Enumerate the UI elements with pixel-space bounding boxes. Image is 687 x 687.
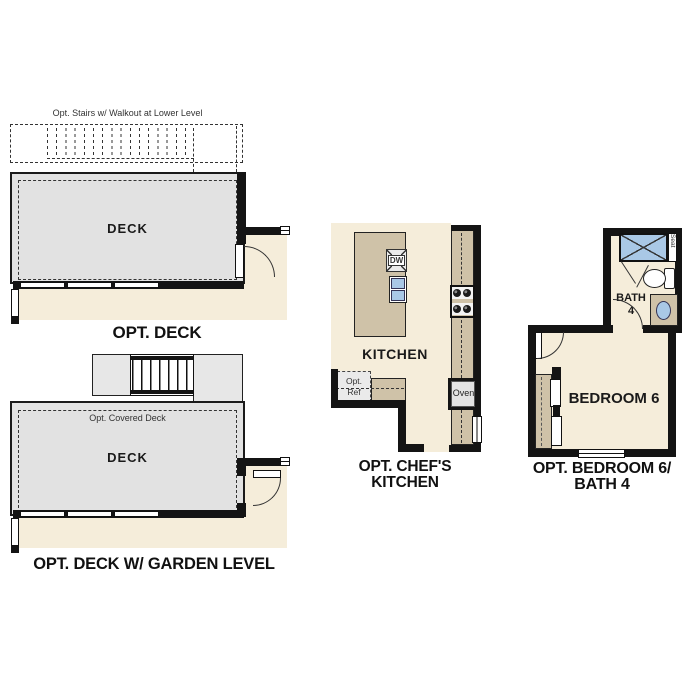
plan-title-line2: BATH 4 [512,476,687,494]
wall [331,400,406,408]
wall [331,369,338,408]
burner [453,289,461,297]
wall [449,445,481,452]
kitchen-island [354,232,406,337]
burner [453,305,461,313]
ground-strip [18,288,287,320]
wall [451,225,481,231]
plan-title-line2: KITCHEN [325,474,485,492]
closet-rod-dashed [541,377,542,446]
bath-label-line1: BATH [606,292,656,304]
wall [243,227,281,235]
opt-ref-label-line1: Opt. [338,376,370,387]
railing-segment [20,511,65,517]
closet-shelf [535,374,552,449]
bath-door-arc [613,299,643,329]
counter-centerline [461,410,462,443]
shower-door-line [621,261,636,283]
sink-basin [391,290,405,301]
railing-segment [67,282,112,288]
bath-floor [603,228,682,330]
wall [603,228,611,325]
kitchen-floor [398,401,451,452]
oven [451,381,475,407]
sink-basin [391,278,405,289]
vanity-sink [656,301,671,320]
stair-dashed-line [236,126,237,172]
wall [528,325,536,457]
door-leaf [235,244,244,278]
cooktop [450,285,475,318]
wall [398,400,406,452]
closet-door-panel [551,416,562,446]
stair-treads [132,360,192,390]
plan-title-line1: OPT. CHEF'S [325,458,485,476]
counter-run [451,225,474,445]
wall [398,444,424,452]
wall [237,458,246,476]
toilet-tank [664,268,675,289]
closet-wall-stub [553,405,560,416]
plan-opt-deck-garden: Opt. Covered Deck DECK OPT. DECK W/ GARD… [0,345,330,585]
wall [603,228,682,236]
stair-rail [131,390,193,394]
window [472,416,482,443]
stair-treads [47,128,194,158]
cooktop-row [452,287,473,299]
door-leaf [253,470,281,478]
bath-label-line2: 4 [606,305,656,317]
counter-dashed-line [331,388,404,389]
railing-stub [11,289,19,317]
plan-title: OPT. DECK [57,323,257,343]
opt-ref-label-line2: Ref [338,387,370,398]
wall [528,449,676,457]
shower [619,233,668,262]
door-leaf [535,332,542,359]
stair-dashed-line [193,128,194,172]
dishwasher [386,249,407,272]
bedroom-room-label: BEDROOM 6 [544,390,684,407]
oven-frame [448,378,478,410]
plan-title-line1: OPT. BEDROOM 6/ [512,460,687,478]
ground-strip [18,518,287,548]
wall [643,325,682,333]
stair-landing [92,354,131,396]
wall [675,228,682,330]
kitchen-room-label: KITCHEN [325,346,465,362]
burner [463,289,471,297]
window [578,449,625,458]
railing-segment [114,282,159,288]
oven-label: Oven [449,388,478,398]
counter-centerline [461,233,462,284]
closet-door-panel [550,379,561,407]
railing-segment [20,282,65,288]
plan-title: OPT. DECK W/ GARDEN LEVEL [29,555,279,574]
vanity [650,294,678,326]
wall [474,225,481,452]
shower-seat: Seat [668,233,677,262]
covered-deck-note: Opt. Covered Deck [10,413,245,423]
opt-ref-box: Opt. Ref [337,371,371,402]
floorplan-sheet: Opt. Stairs w/ Walkout at Lower Level DE… [0,0,687,687]
wall [668,333,676,457]
deck-room-label: DECK [10,450,245,465]
door-swing-arc [537,332,564,359]
wall [243,458,281,466]
window [280,457,290,466]
closet-wall-stub [552,367,561,381]
shower-seat-label: Seat [669,234,676,247]
railing-post [11,546,19,553]
railing-segment [67,511,112,517]
stairs-note: Opt. Stairs w/ Walkout at Lower Level [10,108,245,118]
counter [371,378,406,402]
railing-segment [114,511,159,517]
kitchen-floor [331,223,451,401]
wall [528,325,613,333]
kitchen-sink [389,276,407,303]
window [280,226,290,235]
railing-post [11,317,19,324]
cooktop-row [452,303,473,315]
counter-centerline [461,320,462,378]
deck-room-label: DECK [10,221,245,236]
stair-break-line [47,158,194,159]
shower-door-line [636,265,649,288]
toilet-bowl [643,269,666,288]
plan-opt-deck: Opt. Stairs w/ Walkout at Lower Level DE… [0,0,330,345]
bedroom-floor [528,325,676,457]
burner [463,305,471,313]
dishwasher-label: DW [388,255,405,266]
railing-stub [11,518,19,546]
